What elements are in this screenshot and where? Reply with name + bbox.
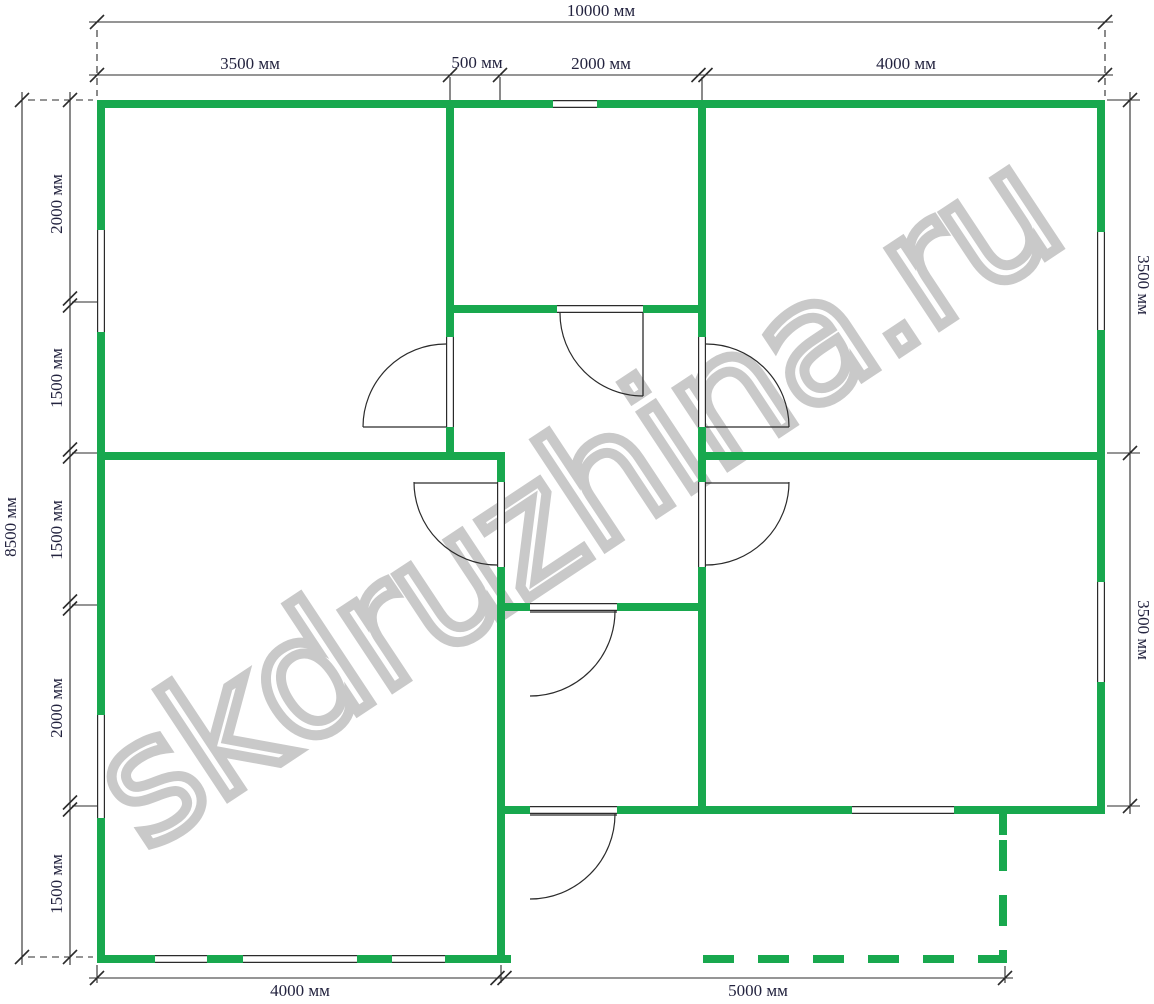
window-opening xyxy=(243,955,357,963)
window-opening xyxy=(852,806,954,814)
door-swing-arc xyxy=(363,344,446,427)
door-swing-arc xyxy=(560,313,643,396)
wall-segment xyxy=(97,100,1105,108)
floor-plan-svg xyxy=(0,0,1154,1004)
wall-segment xyxy=(999,814,1007,835)
window-opening xyxy=(392,955,445,963)
wall-segment xyxy=(97,100,105,963)
door-swing-arc xyxy=(530,611,615,696)
wall-segment xyxy=(1097,100,1105,814)
window-opening xyxy=(155,955,207,963)
door-swing-arc xyxy=(530,814,615,899)
wall-segment xyxy=(706,452,1097,460)
door-opening xyxy=(530,806,617,814)
wall-segment xyxy=(105,452,505,460)
door-swing-arc xyxy=(414,482,497,565)
door-swing-arc xyxy=(706,344,789,427)
door-opening xyxy=(698,482,706,567)
wall-segment xyxy=(698,108,706,814)
door-opening xyxy=(530,603,617,611)
door-swing-arc xyxy=(706,482,789,565)
door-opening xyxy=(698,337,706,427)
floor-plan-stage: skdruzhina.ru 10000 мм3500 мм500 мм2000 … xyxy=(0,0,1154,1004)
